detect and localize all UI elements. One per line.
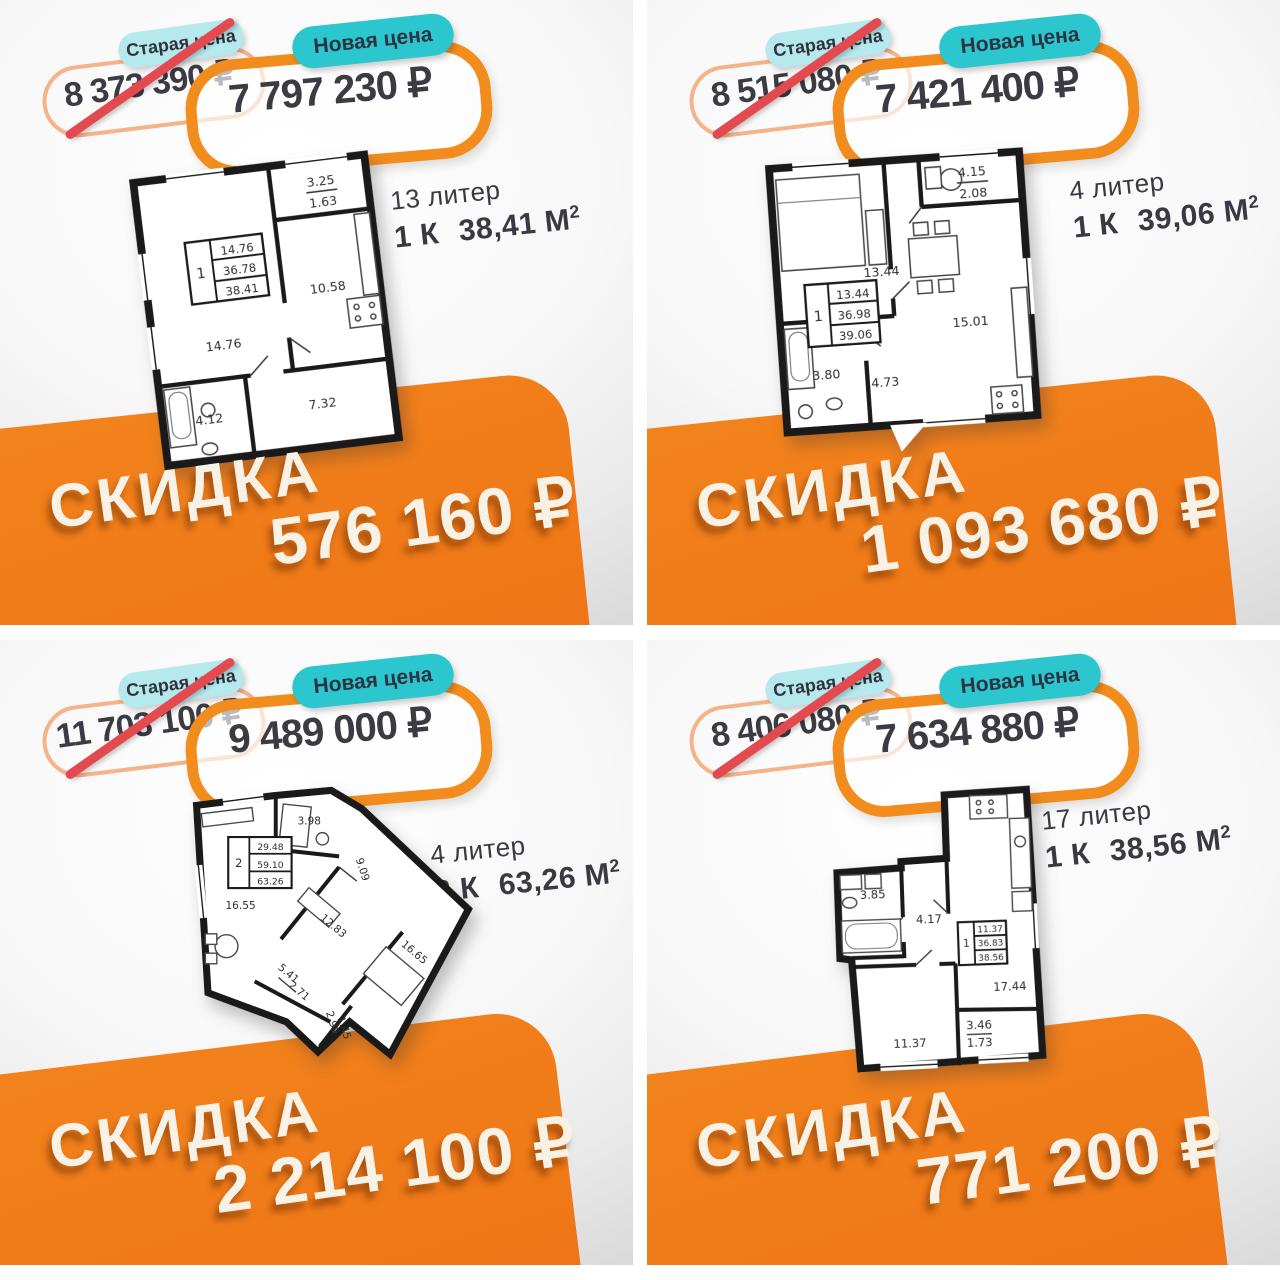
area-sup: 2 xyxy=(1219,821,1232,842)
room-area-label: 2.08 xyxy=(959,184,988,201)
room-area-label: 4.15 xyxy=(957,163,986,180)
room-area-label: 4.73 xyxy=(871,374,900,391)
offer-card-4: Старая цена 8 406 080 ₽ Новая цена 7 634… xyxy=(647,640,1280,1265)
room-area-label: 11.37 xyxy=(893,1036,927,1051)
stamp-value: 36.98 xyxy=(837,307,871,323)
apartment-stamp: 1 14.76 36.78 38.41 xyxy=(185,234,270,305)
stamp-value: 59.10 xyxy=(257,860,284,871)
stamp-value: 39.06 xyxy=(839,327,873,343)
apartment-stamp: 1 13.44 36.98 39.06 xyxy=(804,280,880,347)
offer-card-1: Старая цена 8 373 390 ₽ Новая цена 7 797… xyxy=(0,0,633,625)
area-value: 38,56 М xyxy=(1108,823,1223,868)
promo-grid: Старая цена 8 373 390 ₽ Новая цена 7 797… xyxy=(0,0,1280,1265)
area-sup: 2 xyxy=(1247,191,1260,212)
floor-plan: 1 13.44 36.98 39.06 4.15 2.08 13.44 15.0… xyxy=(759,141,1052,464)
stamp-value: 29.48 xyxy=(257,842,284,853)
stamp-value: 11.37 xyxy=(977,924,1003,935)
floor-plan: 1 14.76 36.78 38.41 3.25 1.63 10.58 14.7… xyxy=(123,144,410,475)
area-value: 63,26 М xyxy=(497,857,612,902)
stamp-value: 36.83 xyxy=(978,939,1004,950)
offer-card-3: Старая цена 11 703 100 ₽ Новая цена 9 48… xyxy=(0,640,633,1265)
apartment-stamp: 1 11.37 36.83 38.56 xyxy=(958,921,1008,966)
area-sup: 2 xyxy=(608,855,621,876)
stamp-rooms: 1 xyxy=(963,937,970,950)
room-area-label: 3.85 xyxy=(859,887,885,902)
floor-plan: 2 29.48 59.10 63.26 3.98 9.09 16.55 12.8… xyxy=(142,786,494,1076)
area-sup: 2 xyxy=(568,201,581,222)
floor-plan: 1 11.37 36.83 38.56 3.85 4.17 17.44 11.3… xyxy=(794,777,1072,1090)
room-area-label: 15.01 xyxy=(952,313,989,330)
stamp-rooms: 1 xyxy=(196,266,207,283)
area-value: 39,06 М xyxy=(1136,193,1251,238)
area-value: 38,41 М xyxy=(457,203,572,248)
apartment-info: 13 литер 1 К38,41 М2 xyxy=(389,166,583,255)
rooms-count: 1 К xyxy=(393,217,441,255)
room-area-label: 3.46 xyxy=(966,1017,992,1032)
room-area-label: 13.44 xyxy=(863,263,900,280)
room-area-label: 3.80 xyxy=(812,366,841,383)
room-area-label: 4.17 xyxy=(916,912,942,927)
apartment-stamp: 2 29.48 59.10 63.26 xyxy=(228,837,291,888)
room-area-label: 17.44 xyxy=(993,979,1027,994)
apartment-info: 4 литер 1 К39,06 М2 xyxy=(1068,156,1262,245)
rooms-count: 1 К xyxy=(1072,207,1120,245)
room-area-label: 3.98 xyxy=(297,816,320,828)
room-area-label: 16.55 xyxy=(225,900,255,912)
stamp-rooms: 1 xyxy=(813,308,823,326)
stamp-value: 13.44 xyxy=(836,286,870,302)
room-area-label: 1.73 xyxy=(967,1035,993,1050)
offer-card-2: Старая цена 8 515 080 ₽ Новая цена 7 421… xyxy=(647,0,1280,625)
stamp-rooms: 2 xyxy=(235,856,242,870)
stamp-value: 38.56 xyxy=(978,953,1004,964)
stamp-value: 63.26 xyxy=(257,877,284,888)
